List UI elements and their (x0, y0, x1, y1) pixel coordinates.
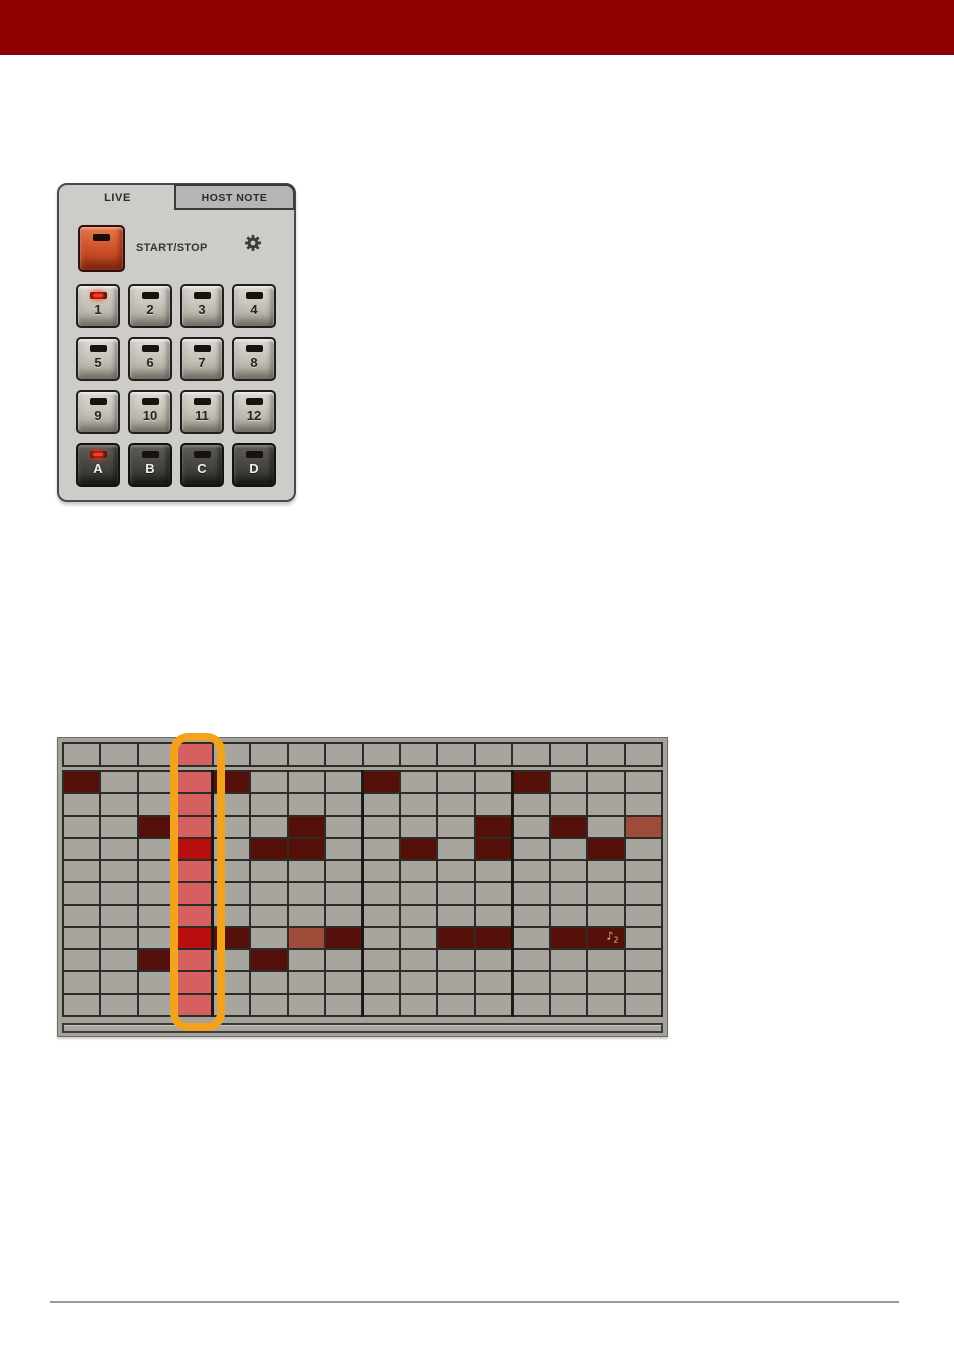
step-cell[interactable] (176, 950, 211, 970)
step-cell[interactable] (101, 861, 136, 881)
step-cell[interactable] (251, 995, 286, 1015)
step-cell[interactable] (476, 906, 511, 926)
step-header-cell[interactable] (139, 744, 174, 765)
step-cell[interactable] (64, 839, 99, 859)
step-cell[interactable] (64, 995, 99, 1015)
pad-label: C (182, 461, 222, 476)
step-cell[interactable] (401, 906, 436, 926)
step-cell[interactable] (289, 861, 324, 881)
pad-button-8[interactable]: 8 (232, 337, 276, 381)
step-cell[interactable] (438, 950, 473, 970)
step-cell[interactable] (364, 772, 399, 792)
pad-button-5[interactable]: 5 (76, 337, 120, 381)
led-indicator-on (93, 294, 103, 298)
step-cell[interactable] (214, 928, 249, 948)
step-cell[interactable] (626, 861, 661, 881)
step-cell[interactable] (551, 906, 586, 926)
step-cell[interactable] (588, 972, 623, 992)
step-cell[interactable] (551, 772, 586, 792)
pad-button-A[interactable]: A (76, 443, 120, 487)
pad-button-11[interactable]: 11 (180, 390, 224, 434)
step-cell[interactable] (476, 928, 511, 948)
step-cell[interactable] (551, 928, 586, 948)
step-cell[interactable] (513, 883, 548, 903)
step-cell[interactable] (326, 794, 361, 814)
pad-button-10[interactable]: 10 (128, 390, 172, 434)
step-header-cell[interactable] (101, 744, 136, 765)
pad-label: B (130, 461, 170, 476)
start-stop-label: START/STOP (136, 242, 200, 254)
led-indicator-on (93, 453, 103, 457)
sequencer-header-row (62, 742, 663, 767)
pad-button-3[interactable]: 3 (180, 284, 224, 328)
step-cell[interactable] (326, 972, 361, 992)
step-cell[interactable] (64, 772, 99, 792)
step-cell[interactable] (101, 839, 136, 859)
tab-live[interactable]: LIVE (59, 185, 176, 212)
step-cell[interactable] (176, 839, 211, 859)
sequencer-scrollbar[interactable] (62, 1023, 663, 1033)
step-cell[interactable] (588, 839, 623, 859)
step-cell[interactable] (139, 906, 174, 926)
led-window (142, 451, 159, 458)
pad-button-B[interactable]: B (128, 443, 172, 487)
step-cell[interactable] (513, 950, 548, 970)
pad-label: 3 (182, 302, 222, 317)
step-cell[interactable] (326, 995, 361, 1015)
led-window (142, 345, 159, 352)
pad-label: A (78, 461, 118, 476)
step-cell[interactable] (214, 861, 249, 881)
step-cell[interactable] (476, 794, 511, 814)
step-cell[interactable] (438, 839, 473, 859)
step-cell[interactable] (513, 839, 548, 859)
step-cell[interactable] (588, 950, 623, 970)
step-cell[interactable] (364, 794, 399, 814)
step-cell[interactable] (139, 928, 174, 948)
step-cell[interactable] (364, 950, 399, 970)
step-cell[interactable] (289, 972, 324, 992)
step-cell[interactable] (64, 861, 99, 881)
page-header-bar (0, 0, 954, 55)
led-window (90, 451, 107, 458)
bar-separator (361, 770, 364, 1017)
step-cell[interactable] (289, 794, 324, 814)
step-cell[interactable] (551, 861, 586, 881)
gear-icon[interactable] (244, 234, 262, 252)
step-cell[interactable] (588, 861, 623, 881)
step-cell[interactable] (64, 972, 99, 992)
step-cell[interactable] (513, 928, 548, 948)
step-cell[interactable] (251, 861, 286, 881)
step-cell[interactable] (214, 839, 249, 859)
step-cell[interactable] (139, 883, 174, 903)
step-sequencer: ♪2 (57, 737, 668, 1037)
pad-label: 5 (78, 355, 118, 370)
step-cell[interactable] (289, 839, 324, 859)
step-cell[interactable] (139, 995, 174, 1015)
step-header-cell[interactable] (513, 744, 548, 765)
step-cell[interactable] (326, 839, 361, 859)
step-cell[interactable] (364, 817, 399, 837)
start-stop-button[interactable] (78, 225, 125, 272)
step-cell[interactable] (588, 995, 623, 1015)
step-cell[interactable] (401, 839, 436, 859)
step-cell[interactable] (176, 794, 211, 814)
step-cell[interactable] (289, 883, 324, 903)
step-cell[interactable] (476, 861, 511, 881)
step-cell[interactable] (626, 928, 661, 948)
step-cell[interactable] (176, 883, 211, 903)
pad-label: 11 (182, 408, 222, 423)
step-cell[interactable] (101, 906, 136, 926)
led-window (90, 398, 107, 405)
step-cell[interactable] (438, 906, 473, 926)
pad-label: 2 (130, 302, 170, 317)
step-cell[interactable] (251, 883, 286, 903)
step-cell[interactable] (326, 950, 361, 970)
step-cell[interactable] (513, 772, 548, 792)
step-cell[interactable] (176, 772, 211, 792)
step-cell[interactable] (101, 995, 136, 1015)
step-cell[interactable] (214, 995, 249, 1015)
step-cell[interactable] (401, 995, 436, 1015)
step-cell[interactable] (176, 817, 211, 837)
step-header-cell[interactable] (551, 744, 586, 765)
led-window (246, 398, 263, 405)
step-cell[interactable] (588, 817, 623, 837)
step-cell[interactable] (401, 928, 436, 948)
pad-label: 10 (130, 408, 170, 423)
led-window (246, 345, 263, 352)
pad-button-7[interactable]: 7 (180, 337, 224, 381)
step-cell[interactable] (251, 928, 286, 948)
step-header-cell[interactable] (364, 744, 399, 765)
step-header-cell[interactable] (588, 744, 623, 765)
step-cell[interactable] (551, 794, 586, 814)
step-cell[interactable] (438, 972, 473, 992)
footer-divider (50, 1301, 899, 1303)
step-header-cell[interactable] (64, 744, 99, 765)
step-cell[interactable] (364, 906, 399, 926)
step-header-cell[interactable] (626, 744, 661, 765)
step-cell[interactable] (326, 883, 361, 903)
led-window (90, 345, 107, 352)
step-cell[interactable] (64, 950, 99, 970)
step-cell[interactable] (438, 794, 473, 814)
led-window (194, 398, 211, 405)
manual-page: LIVE HOST NOTE START/STOP 12345678910111… (0, 0, 954, 1349)
led-window (93, 234, 110, 241)
step-cell[interactable] (101, 772, 136, 792)
step-cell[interactable] (251, 950, 286, 970)
step-cell[interactable] (551, 817, 586, 837)
step-cell[interactable] (551, 995, 586, 1015)
pad-label: 7 (182, 355, 222, 370)
step-cell[interactable] (626, 772, 661, 792)
step-cell[interactable] (626, 839, 661, 859)
led-window (90, 292, 107, 299)
step-cell[interactable] (289, 817, 324, 837)
step-header-cell[interactable] (251, 744, 286, 765)
step-cell[interactable] (476, 772, 511, 792)
step-cell[interactable] (251, 817, 286, 837)
step-cell[interactable] (513, 972, 548, 992)
step-cell[interactable] (626, 883, 661, 903)
step-header-cell[interactable] (176, 744, 211, 765)
pad-button-C[interactable]: C (180, 443, 224, 487)
step-cell[interactable] (476, 995, 511, 1015)
step-cell[interactable] (214, 794, 249, 814)
step-cell[interactable] (438, 861, 473, 881)
step-cell[interactable] (438, 772, 473, 792)
step-cell[interactable] (64, 906, 99, 926)
step-cell[interactable] (588, 772, 623, 792)
step-cell[interactable] (626, 906, 661, 926)
step-cell[interactable] (364, 883, 399, 903)
step-cell[interactable] (214, 883, 249, 903)
bar-separator (511, 770, 514, 1017)
step-cell[interactable] (214, 906, 249, 926)
step-cell[interactable] (64, 794, 99, 814)
step-cell[interactable] (101, 928, 136, 948)
step-cell[interactable] (176, 861, 211, 881)
step-cell[interactable] (176, 995, 211, 1015)
step-cell[interactable] (438, 928, 473, 948)
step-cell[interactable] (364, 995, 399, 1015)
step-cell[interactable] (401, 861, 436, 881)
led-window (142, 292, 159, 299)
step-cell[interactable] (401, 883, 436, 903)
bar-separator (211, 770, 214, 1017)
step-cell[interactable] (64, 883, 99, 903)
step-cell[interactable] (176, 906, 211, 926)
pad-label: D (234, 461, 274, 476)
pad-label: 9 (78, 408, 118, 423)
step-cell[interactable] (251, 839, 286, 859)
step-cell[interactable] (139, 972, 174, 992)
step-cell[interactable] (364, 861, 399, 881)
step-cell[interactable] (289, 928, 324, 948)
step-cell[interactable] (214, 772, 249, 792)
step-cell[interactable] (289, 995, 324, 1015)
step-cell[interactable] (401, 817, 436, 837)
step-cell[interactable] (626, 794, 661, 814)
step-cell[interactable] (101, 817, 136, 837)
step-header-cell[interactable] (326, 744, 361, 765)
step-cell[interactable] (626, 817, 661, 837)
step-cell[interactable] (438, 995, 473, 1015)
step-cell[interactable] (289, 950, 324, 970)
step-cell[interactable] (476, 883, 511, 903)
step-cell[interactable] (139, 950, 174, 970)
step-cell[interactable] (251, 972, 286, 992)
step-cell[interactable] (251, 794, 286, 814)
step-cell[interactable] (588, 794, 623, 814)
step-cell[interactable] (64, 928, 99, 948)
step-cell[interactable] (476, 950, 511, 970)
step-cell[interactable] (289, 772, 324, 792)
step-cell[interactable] (326, 928, 361, 948)
step-cell[interactable] (176, 928, 211, 948)
step-cell[interactable] (401, 972, 436, 992)
step-cell[interactable] (513, 794, 548, 814)
step-cell[interactable] (438, 817, 473, 837)
step-cell[interactable] (326, 906, 361, 926)
step-cell[interactable] (214, 950, 249, 970)
step-cell[interactable] (326, 817, 361, 837)
step-cell[interactable] (139, 817, 174, 837)
step-cell[interactable] (551, 950, 586, 970)
step-cell[interactable] (626, 995, 661, 1015)
step-cell[interactable] (101, 972, 136, 992)
pad-label: 8 (234, 355, 274, 370)
step-cell[interactable] (513, 817, 548, 837)
step-cell[interactable] (476, 817, 511, 837)
step-cell[interactable] (139, 839, 174, 859)
step-cell[interactable] (64, 817, 99, 837)
step-cell[interactable] (513, 995, 548, 1015)
pad-button-1[interactable]: 1 (76, 284, 120, 328)
step-cell[interactable] (214, 972, 249, 992)
step-cell[interactable] (438, 883, 473, 903)
step-cell[interactable] (289, 906, 324, 926)
step-cell[interactable] (326, 772, 361, 792)
step-cell[interactable] (214, 817, 249, 837)
step-cell[interactable] (401, 772, 436, 792)
step-header-cell[interactable] (214, 744, 249, 765)
pad-label: 6 (130, 355, 170, 370)
live-pad-panel: LIVE HOST NOTE START/STOP 12345678910111… (57, 183, 296, 502)
pad-label: 1 (78, 302, 118, 317)
led-window (194, 451, 211, 458)
step-cell[interactable] (513, 861, 548, 881)
pad-button-6[interactable]: 6 (128, 337, 172, 381)
step-cell[interactable] (551, 883, 586, 903)
pad-label: 12 (234, 408, 274, 423)
step-cell[interactable] (626, 972, 661, 992)
step-header-cell[interactable] (438, 744, 473, 765)
step-cell[interactable] (551, 839, 586, 859)
step-cell[interactable] (139, 861, 174, 881)
step-header-cell[interactable] (289, 744, 324, 765)
pad-button-9[interactable]: 9 (76, 390, 120, 434)
pad-label: 4 (234, 302, 274, 317)
step-cell[interactable] (626, 950, 661, 970)
step-cell[interactable] (176, 972, 211, 992)
step-header-cell[interactable] (476, 744, 511, 765)
step-cell[interactable] (139, 772, 174, 792)
step-cell[interactable] (513, 906, 548, 926)
led-window (194, 345, 211, 352)
step-cell[interactable] (251, 772, 286, 792)
step-cell[interactable] (139, 794, 174, 814)
tab-host-note[interactable]: HOST NOTE (174, 184, 295, 210)
step-cell[interactable]: ♪2 (588, 928, 623, 948)
step-cell[interactable] (364, 972, 399, 992)
pad-button-D[interactable]: D (232, 443, 276, 487)
step-cell[interactable] (588, 906, 623, 926)
step-cell[interactable] (251, 906, 286, 926)
step-cell[interactable] (364, 839, 399, 859)
step-cell[interactable] (401, 794, 436, 814)
led-window (246, 451, 263, 458)
step-cell[interactable] (101, 883, 136, 903)
step-cell[interactable] (551, 972, 586, 992)
pad-button-2[interactable]: 2 (128, 284, 172, 328)
led-window (246, 292, 263, 299)
step-cell[interactable] (401, 950, 436, 970)
pad-button-4[interactable]: 4 (232, 284, 276, 328)
step-cell[interactable] (101, 794, 136, 814)
step-header-cell[interactable] (401, 744, 436, 765)
step-cell[interactable] (326, 861, 361, 881)
step-cell[interactable] (476, 972, 511, 992)
note-length-icon: ♪2 (606, 930, 618, 944)
led-window (194, 292, 211, 299)
led-window (142, 398, 159, 405)
step-cell[interactable] (588, 883, 623, 903)
step-cell[interactable] (476, 839, 511, 859)
step-cell[interactable] (101, 950, 136, 970)
step-cell[interactable] (364, 928, 399, 948)
pad-button-12[interactable]: 12 (232, 390, 276, 434)
pad-grid: 123456789101112ABCD (76, 284, 276, 487)
